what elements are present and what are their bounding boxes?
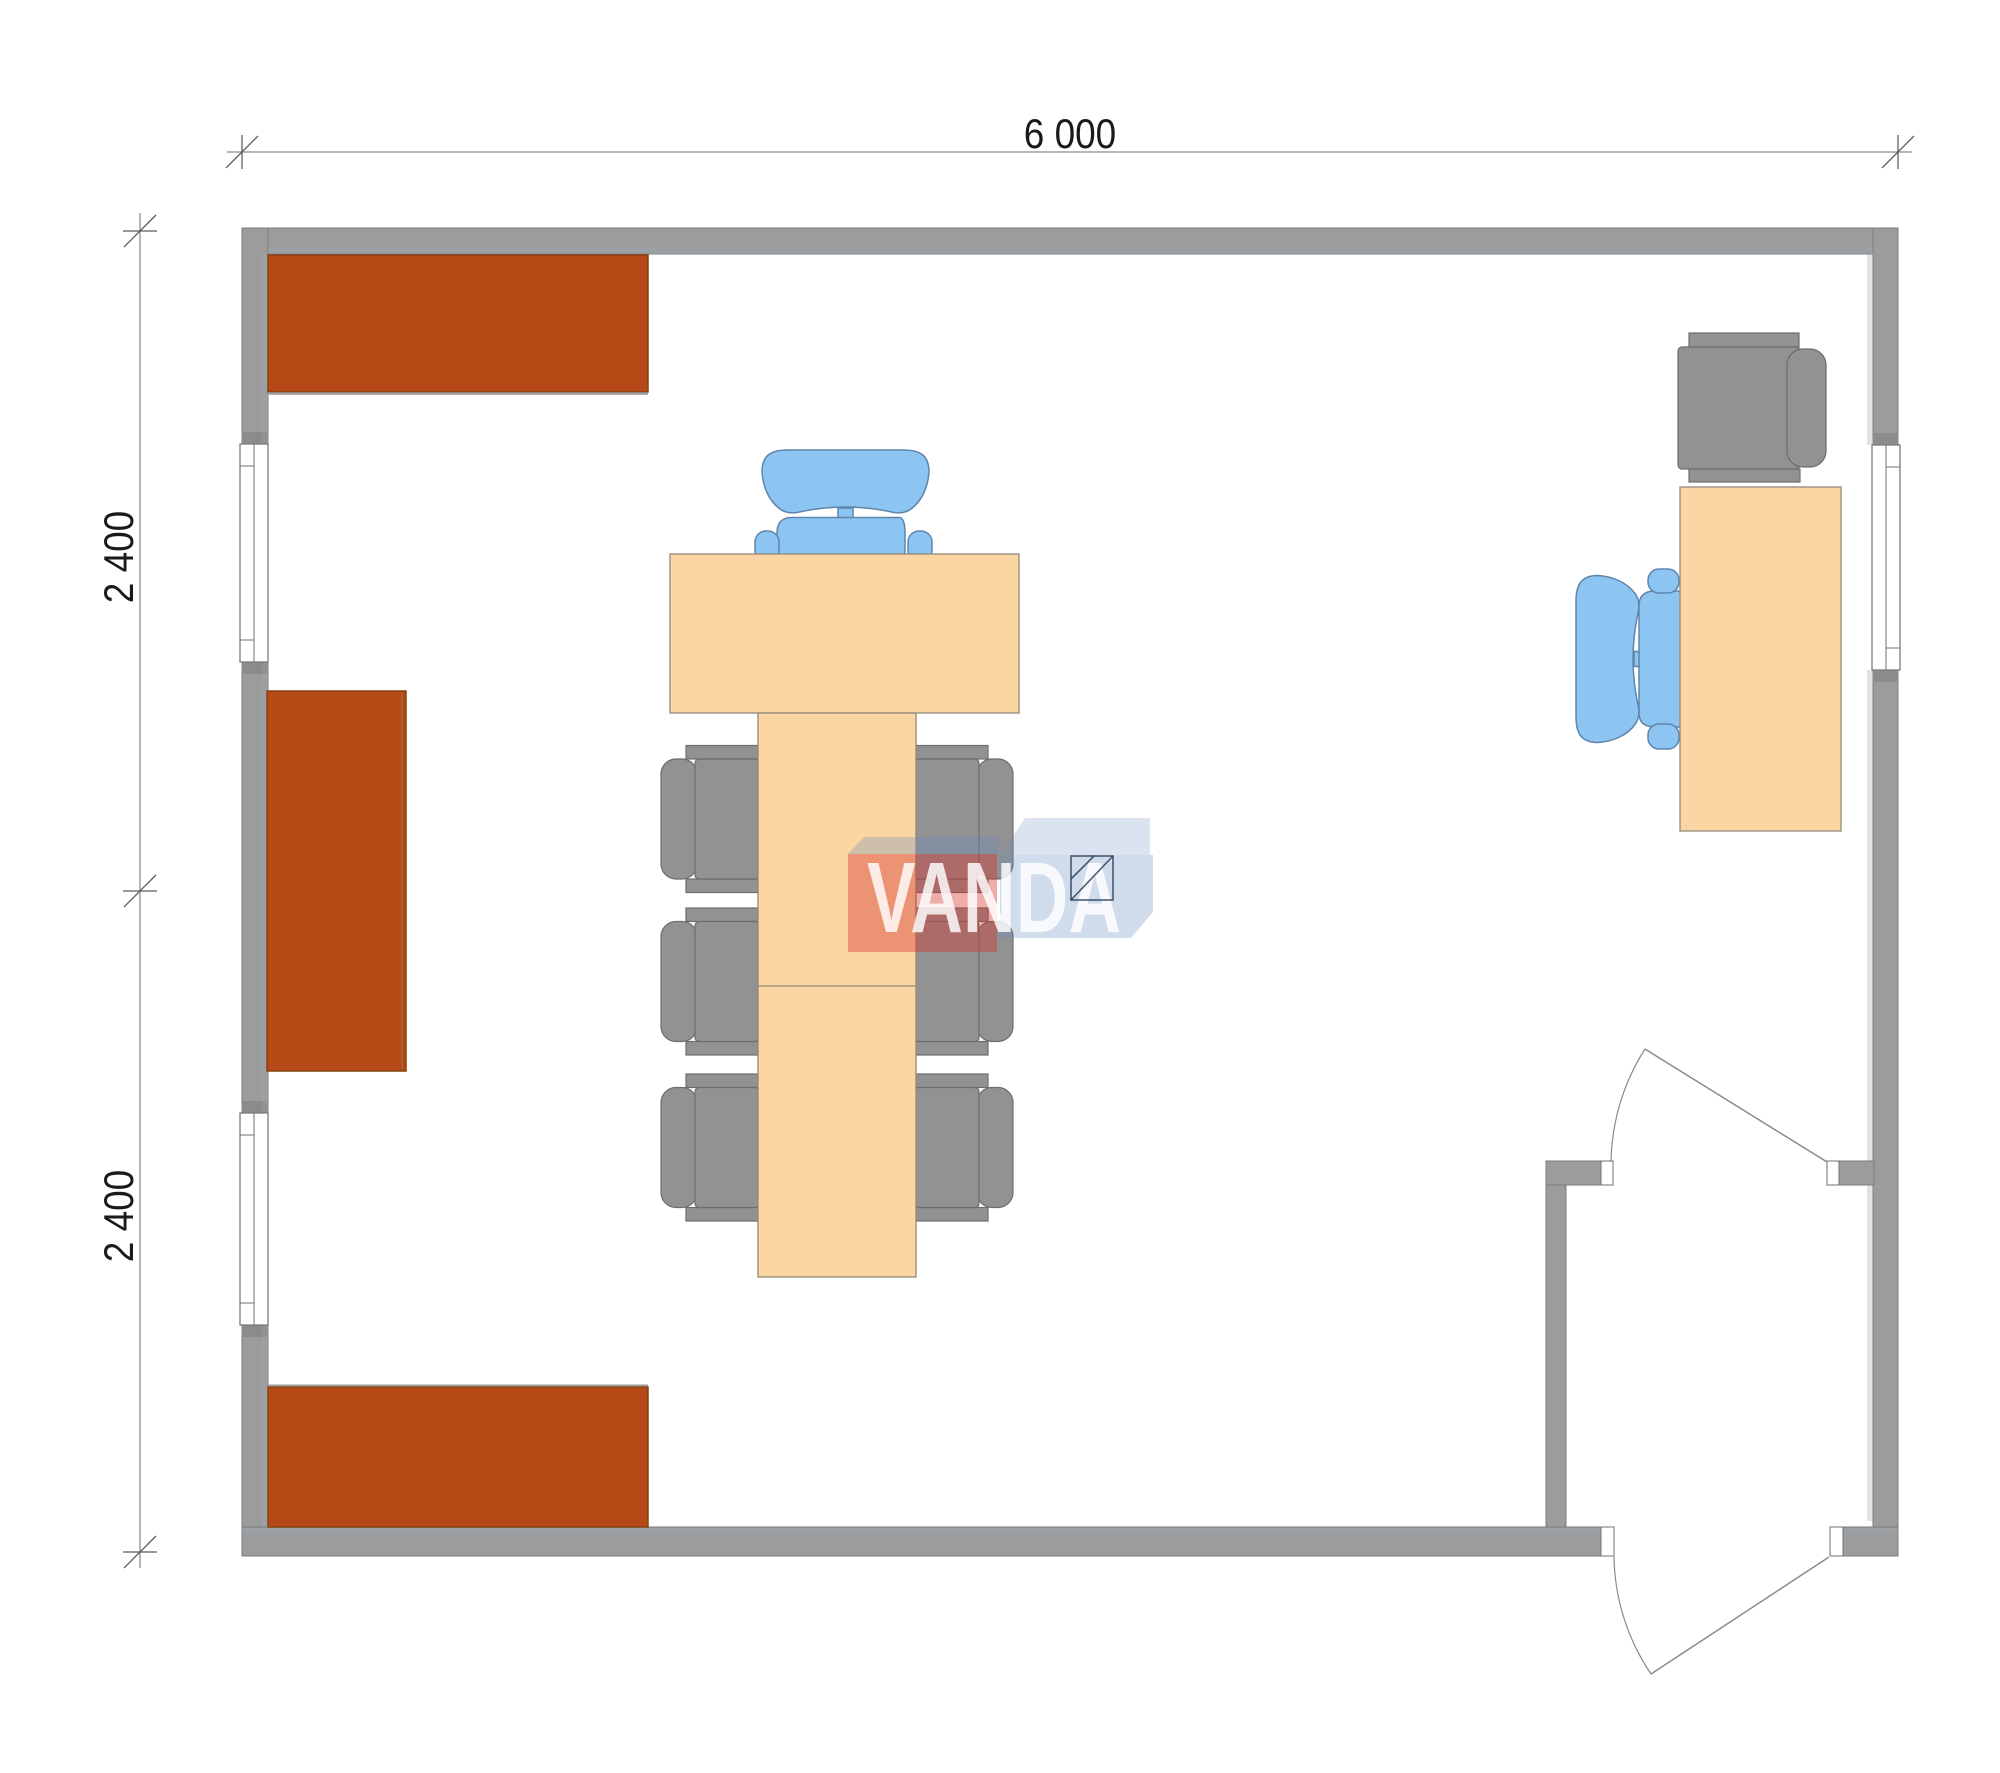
svg-text:VANDA: VANDA [867, 842, 1121, 954]
svg-text:2 400: 2 400 [96, 511, 143, 603]
svg-text:6 000: 6 000 [1024, 111, 1116, 158]
svg-text:2 400: 2 400 [96, 1170, 143, 1262]
